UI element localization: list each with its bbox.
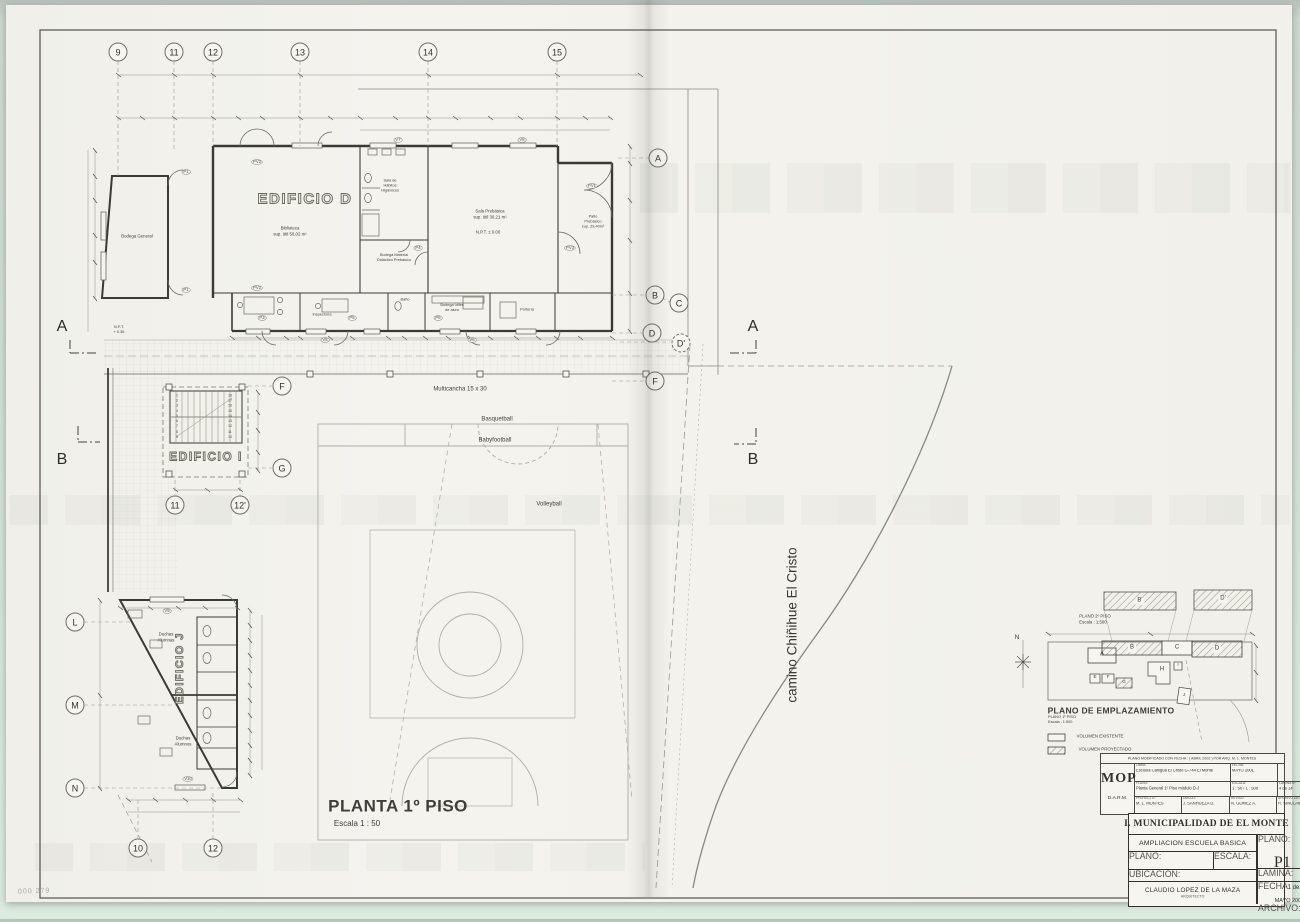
court-basquetball-label: Basquetball xyxy=(481,416,512,424)
mop-escala-cell: ESCALA: 1 : 50 / 1 : 500 xyxy=(1231,782,1278,796)
grid-bubble-stair-11: 11 xyxy=(166,496,185,515)
stair-numbers-left: 12 34 56 78 9 xyxy=(176,393,178,441)
grid-bubble-13: 13 xyxy=(291,43,310,62)
tb-lamina-cell: LAMINA: 1 de 6 xyxy=(1258,869,1300,882)
tb-architect-cell: CLAUDIO LOPEZ DE LA MAZA ARQUITECTO xyxy=(1129,882,1256,904)
tag-v9: V9 xyxy=(163,608,172,613)
mop-dibujo-cell: DIBUJO: J. SANHUEZA D. xyxy=(1182,797,1229,813)
grid-bubble-l: L xyxy=(66,613,85,632)
site-building-g: G xyxy=(1122,680,1126,686)
section-marker-b-right: B xyxy=(748,451,759,469)
room-bano: Baño xyxy=(401,298,410,303)
tag-p1-upper: P1 xyxy=(182,169,191,174)
grid-bubble-stair-12p: 12' xyxy=(231,496,250,515)
legend-existing-label: VOLUMEN EXISTENTE xyxy=(1077,734,1124,739)
site-building-c: C xyxy=(1175,644,1179,652)
plan-title: PLANTA 1º PISO xyxy=(328,795,468,816)
tag-v6: V6 xyxy=(468,337,477,342)
grid-bubble-m: M xyxy=(66,696,85,715)
room-sala-prebasica-npt: N.P.T. ± 0.00 xyxy=(476,230,500,235)
site-building-h: H xyxy=(1160,666,1164,674)
court-volleyball-label: Volleyball xyxy=(536,501,561,509)
tag-p6: P6 xyxy=(434,315,443,320)
grid-bubble-12: 12 xyxy=(204,43,223,62)
tag-pv2-lower: PV2 xyxy=(251,285,263,290)
room-duchas-alumnas: Duchas Alumnas xyxy=(158,633,175,644)
grid-bubble-stair-f: F xyxy=(273,377,292,396)
site-upper-caption: PLANO 2º PISOEscala : 1:500 xyxy=(1079,615,1111,626)
site-building-d-prime: D' xyxy=(1218,595,1227,603)
room-porteria: Portería xyxy=(520,308,534,313)
tag-v8: V8 xyxy=(518,137,527,142)
tag-p1-lower: P1 xyxy=(182,287,191,292)
mop-blank-cell xyxy=(1278,764,1300,781)
site-building-a: A xyxy=(1100,651,1104,659)
site-building-e: E xyxy=(1093,675,1096,681)
edificio-i-label: EDIFICIO I xyxy=(169,450,243,465)
section-marker-a-left: A xyxy=(57,318,68,336)
grid-bubble-row-d-prime: D' xyxy=(672,334,691,353)
grid-bubble-row-a: A xyxy=(649,149,668,168)
scanned-architectural-sheet: { "sheet": { "scan_mark": "000 279" }, "… xyxy=(0,0,1300,919)
site-building-b-prime: B' xyxy=(1135,597,1144,605)
tag-v7: V7 xyxy=(394,137,403,142)
room-biblioteca: Biblioteca sup. útil 50,02 m² xyxy=(273,227,306,238)
tb-ubicacion-cell: UBICACION: xyxy=(1129,870,1256,882)
plan-scale: Escala 1 : 50 xyxy=(334,819,380,829)
edificio-j-label: EDIFICIO J xyxy=(174,632,188,704)
mop-archivo-cell: ARCHIVO DIGITAL: R. SINCLAIR R. xyxy=(1277,797,1300,813)
grid-bubble-row-b: B xyxy=(646,286,665,305)
road-label: camino Chiñihue El Cristo xyxy=(785,547,802,702)
mop-title-block: PLANO MODIFICADO CON FECHA : ( ABRIL 200… xyxy=(1100,753,1285,815)
site-plan-caption: PLANO 1º PISOEscala : 1:500 xyxy=(1048,715,1076,725)
municipality-name: I. MUNICIPALIDAD DE EL MONTE xyxy=(1129,814,1284,835)
grid-bubble-15: 15 xyxy=(548,43,567,62)
site-building-b: B xyxy=(1128,644,1136,652)
section-marker-a-right: A xyxy=(748,318,759,336)
court-babyfootball-label: Babyfootball xyxy=(478,437,511,445)
room-duchas-alumnos: Duchas Alumnos xyxy=(175,737,192,748)
room-sala-habitos: Sala de Hábitos Higiénicos xyxy=(381,179,399,193)
grid-bubble-row-c: C xyxy=(670,294,689,313)
grid-bubble-9: 9 xyxy=(109,43,128,62)
tb-sheet-cell: PLANO: P1 xyxy=(1258,835,1300,869)
grid-bubble-row-d: D xyxy=(643,324,662,343)
edificio-d-label: EDIFICIO D xyxy=(257,191,352,210)
room-sala-prebasica: Sala Prebásica sup. útil 30,21 m² xyxy=(473,210,506,221)
npt-entrance: N.P.T. + 0.36 xyxy=(114,325,125,335)
site-building-i: I xyxy=(1177,663,1178,669)
multicancha-label: Multicancha 15 x 30 xyxy=(433,386,486,394)
site-building-f: F xyxy=(1107,675,1110,681)
grid-bubble-12b: 12 xyxy=(204,839,223,858)
tag-p5: P5 xyxy=(348,315,357,320)
site-building-d: D xyxy=(1213,645,1221,653)
tag-p4: P4 xyxy=(414,245,423,250)
grid-bubble-row-f: F xyxy=(646,372,665,391)
section-marker-b-left: B xyxy=(57,451,68,469)
scan-number: 000 279 xyxy=(18,887,51,895)
project-name: AMPLIACION ESCUELA BASICA xyxy=(1129,835,1256,852)
mop-plano-cell: PLANO: Planta General 1º Piso módulo D-J xyxy=(1135,782,1231,796)
mop-proyecto-cell: PROYECTO: M. L. MONTES xyxy=(1135,797,1182,813)
grid-bubble-stair-g: G xyxy=(273,459,292,478)
tb-fecha-cell: FECHA: MAYO 2001 ARCHIVO: xyxy=(1258,882,1300,922)
tag-pv1: PV1 xyxy=(586,183,598,188)
grid-bubble-11: 11 xyxy=(165,43,184,62)
mop-reviso-cell: REVISO: N. GOMEZ A. xyxy=(1230,797,1277,813)
tag-pv3: PV3 xyxy=(564,245,576,250)
stair-numbers-right: 1817 1615 1413 1211 10 xyxy=(228,393,232,441)
tb-escala-cell: ESCALA: 1 : 50 xyxy=(1214,852,1256,869)
room-bodega-material: Bodega Material Didáctico Prebásico xyxy=(377,253,411,263)
room-bodega-general: Bodega General xyxy=(121,234,153,239)
mop-fecha-cell: FECHA: MAYO 2001 xyxy=(1231,764,1278,781)
mop-header: PLANO MODIFICADO CON FECHA : ( ABRIL 200… xyxy=(1101,754,1284,764)
mop-obra-cell: OBRA: Escuela Cañigua El Cristo G-744 El… xyxy=(1135,764,1231,781)
mop-lamina-cell: LAMINA Nº 4 de 14 xyxy=(1278,782,1300,796)
room-patio-prebasico: Patio Prebásico sup. 29,40m² xyxy=(582,215,604,229)
room-inspectoria: Inspectoría xyxy=(312,313,331,318)
municipality-title-block: I. MUNICIPALIDAD DE EL MONTE AMPLIACION … xyxy=(1128,813,1285,907)
tag-p3: P3 xyxy=(258,315,267,320)
tb-plano-cell: PLANO: PLANTA GENERAL xyxy=(1129,852,1214,869)
site-building-j: J xyxy=(1183,693,1185,699)
mop-logo: MOP D.A.R.M. xyxy=(1101,764,1135,813)
tag-pv2-upper: PV2 xyxy=(251,159,263,164)
north-label: N xyxy=(1015,634,1020,642)
grid-bubble-n: N xyxy=(66,779,85,798)
tag-v5: V5 xyxy=(321,337,330,342)
room-bodega-utiles: Bodega útiles de aseo xyxy=(440,303,463,313)
legend-projected-label: VOLUMEN PROYECTADO xyxy=(1079,747,1132,752)
grid-bubble-10: 10 xyxy=(129,839,148,858)
grid-bubble-14: 14 xyxy=(419,43,438,62)
